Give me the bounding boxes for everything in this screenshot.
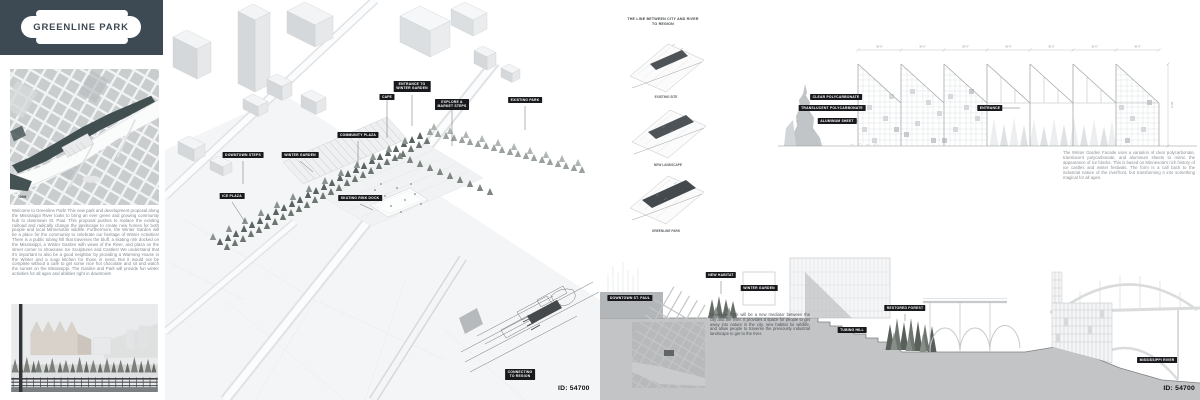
winter-garden-section: [1052, 272, 1112, 363]
title-band: GREENLINE PARK: [0, 0, 163, 55]
label-skating-rink: SKATING RINK DOCK: [338, 195, 382, 201]
section-description: Greenline Park will be a new mediator be…: [710, 313, 810, 337]
board-id-center: ID: 54700: [558, 385, 590, 392]
process-caption-1: EXISTING SITE: [631, 95, 701, 99]
gridded-pavilion: [790, 258, 890, 318]
axon-rendering: [165, 0, 600, 400]
axon-panel: CAFE ENTRANCE TO WINTER GARDEN EXPLORE &…: [165, 0, 600, 400]
page-title: GREENLINE PARK: [33, 22, 128, 33]
facade-height-dimension: 48'-0": [1170, 102, 1174, 109]
label-tubing-hill: TUBING HILL: [838, 327, 867, 333]
facade-description: The Winter Garden Facade uses a variatio…: [1063, 151, 1195, 181]
label-new-habitat: NEW HABITAT: [706, 272, 736, 278]
right-panel: 36'-0" 36'-0" 36'-0" 36'-0" 36'-0" 36'-0…: [600, 0, 1200, 400]
light-pole: [19, 304, 22, 392]
river-section: [600, 258, 1200, 400]
label-section-winter-garden: WINTER GARDEN: [741, 285, 778, 291]
label-explore-market: EXPLORE & MARKET STEPS: [435, 99, 469, 110]
process-caption-3: GREENLINE PARK: [631, 229, 701, 233]
facade-dimension: 36'-0": [1134, 45, 1141, 49]
facade-dimension: 36'-0": [876, 45, 883, 49]
process-heading: THE LINE BETWEEN CITY AND RIVER TO REGIO…: [610, 17, 716, 26]
label-downtown-st-paul: DOWNTOWN ST. PAUL: [607, 295, 652, 301]
label-facade-entrance: ENTRANCE: [977, 105, 1002, 111]
process-diagram-1: [630, 44, 704, 92]
facade-dimension: 36'-0": [1005, 45, 1012, 49]
label-existing-park: EXISTING PARK: [508, 97, 542, 103]
process-caption-2: NEW LANDSCAPE: [633, 163, 703, 167]
label-clear-polycarbonate: CLEAR POLYCARBONATE: [810, 94, 862, 100]
label-downtown-steps: DOWNTOWN STEPS: [223, 152, 264, 158]
label-ice-plaza: ICE PLAZA: [220, 193, 245, 199]
label-mississippi-river: MISSISSIPPI RIVER: [1137, 357, 1177, 363]
map-scale-label: 100M: [18, 195, 27, 199]
site-map-figure: 100M: [10, 69, 159, 205]
left-panel: GREENLINE PARK: [0, 0, 165, 400]
facade-dimension: 36'-0": [962, 45, 969, 49]
intro-paragraph: Welcome to Greenline Park! This new park…: [12, 209, 159, 277]
label-cafe: CAFE: [379, 94, 394, 100]
ribbon-bottom: [36, 36, 128, 44]
process-diagram-3: [630, 176, 704, 224]
title-ribbon: GREENLINE PARK: [21, 16, 141, 38]
label-connecting-region: CONNECTING TO REGION: [505, 369, 535, 380]
drawings: 36'-0" 36'-0" 36'-0" 36'-0" 36'-0" 36'-0…: [600, 0, 1200, 400]
label-winter-garden: WINTER GARDEN: [282, 152, 319, 158]
label-aluminum: ALUMINUM SHEET: [818, 118, 857, 124]
facade-dimension: 36'-0": [1048, 45, 1055, 49]
winter-render: [10, 304, 159, 392]
viaduct: [923, 299, 1020, 353]
bluff-forest: [886, 318, 937, 352]
process-diagram-2: [632, 110, 706, 158]
board-id-right: ID: 54700: [1163, 385, 1195, 392]
label-community-plaza: COMMUNITY PLAZA: [337, 132, 378, 138]
label-entrance: ENTRANCE TO WINTER GARDEN: [394, 81, 431, 92]
process-heading-line2: TO REGION: [610, 22, 716, 27]
site-map: 100M: [10, 69, 159, 205]
presentation-board: GREENLINE PARK: [0, 0, 1200, 400]
winter-render-figure: [10, 304, 159, 392]
label-translucent-polycarbonate: TRANSLUCENT POLYCARBONATE: [799, 105, 866, 111]
facade-dimension: 36'-0": [919, 45, 926, 49]
label-restored-forest: RESTORED FOREST: [884, 305, 925, 311]
facade-dimension: 36'-0": [1091, 45, 1098, 49]
